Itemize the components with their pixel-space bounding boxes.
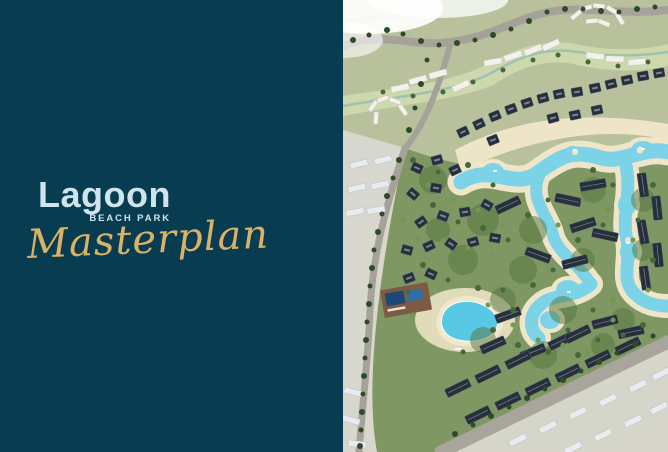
brand-title: Lagoon xyxy=(38,176,171,214)
masterplan-map xyxy=(343,0,668,452)
brand-panel: Lagoon BEACH PARK Masterplan xyxy=(0,0,343,452)
masterplan-slide: Lagoon BEACH PARK Masterplan xyxy=(0,0,668,452)
masterplan-map-svg xyxy=(343,0,668,452)
